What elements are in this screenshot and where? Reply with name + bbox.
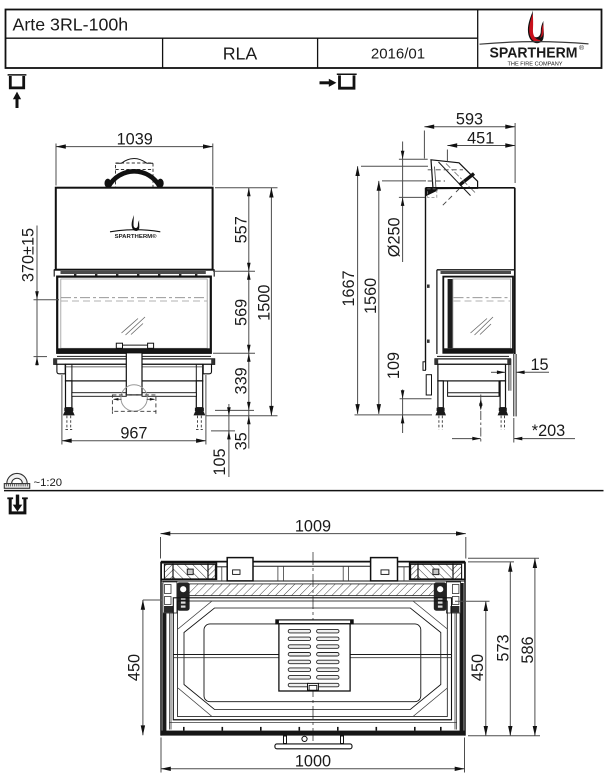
svg-text:SPARTHERM®: SPARTHERM® bbox=[115, 233, 158, 240]
svg-text:*203: *203 bbox=[532, 422, 566, 440]
svg-text:109: 109 bbox=[385, 352, 403, 379]
svg-text:1500: 1500 bbox=[256, 285, 274, 321]
svg-text:370±15: 370±15 bbox=[20, 228, 38, 282]
svg-text:450: 450 bbox=[126, 654, 144, 681]
svg-text:1560: 1560 bbox=[362, 278, 380, 314]
svg-text:1667: 1667 bbox=[340, 270, 358, 306]
svg-text:THE FIRE COMPANY: THE FIRE COMPANY bbox=[508, 62, 564, 68]
svg-text:557: 557 bbox=[233, 216, 251, 243]
svg-text:~1:20: ~1:20 bbox=[34, 477, 63, 489]
svg-text:586: 586 bbox=[519, 636, 537, 663]
svg-text:SPARTHERM: SPARTHERM bbox=[490, 46, 578, 62]
svg-text:450: 450 bbox=[469, 654, 487, 681]
svg-text:2016/01: 2016/01 bbox=[371, 46, 425, 63]
svg-text:451: 451 bbox=[467, 129, 494, 147]
svg-text:15: 15 bbox=[530, 356, 548, 374]
svg-text:593: 593 bbox=[456, 111, 483, 129]
svg-text:1000: 1000 bbox=[295, 753, 331, 771]
svg-text:RLA: RLA bbox=[223, 44, 258, 64]
svg-text:®: ® bbox=[579, 44, 584, 52]
svg-text:Ø250: Ø250 bbox=[385, 217, 403, 257]
svg-text:569: 569 bbox=[233, 299, 251, 326]
svg-text:339: 339 bbox=[233, 367, 251, 394]
svg-text:1039: 1039 bbox=[117, 130, 153, 148]
svg-text:35: 35 bbox=[232, 432, 250, 450]
svg-text:573: 573 bbox=[495, 634, 513, 661]
svg-text:105: 105 bbox=[211, 448, 229, 475]
svg-text:1009: 1009 bbox=[295, 517, 331, 535]
svg-text:967: 967 bbox=[120, 425, 147, 443]
svg-text:Arte 3RL-100h: Arte 3RL-100h bbox=[13, 15, 129, 35]
